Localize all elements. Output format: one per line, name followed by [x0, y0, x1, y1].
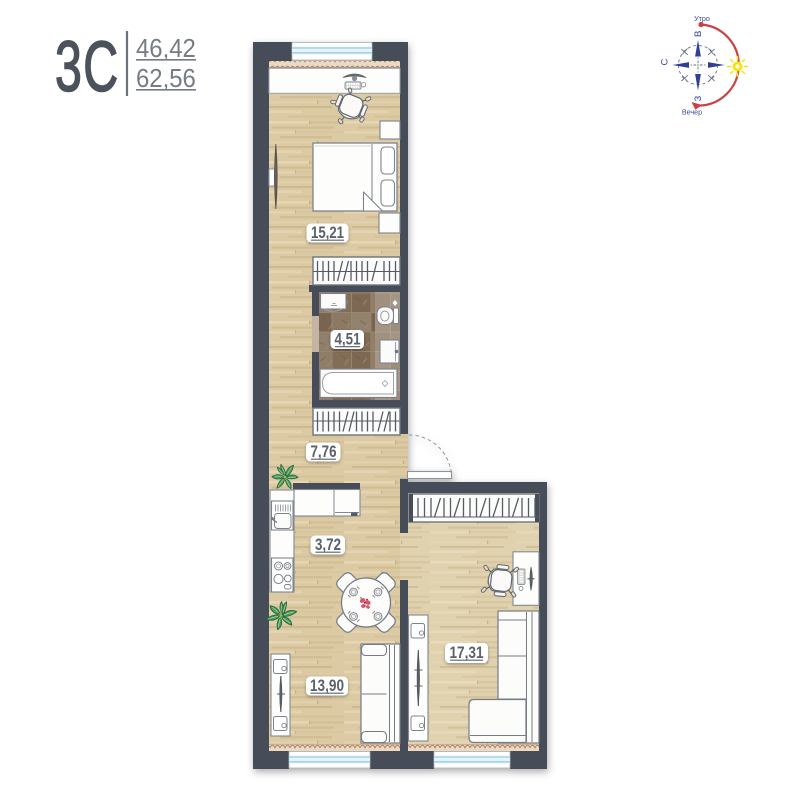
svg-text:С: С [660, 58, 671, 65]
svg-text:З: З [693, 96, 704, 102]
svg-text:4,51: 4,51 [335, 331, 361, 349]
svg-text:Вечер: Вечер [682, 108, 702, 117]
svg-text:В: В [693, 31, 704, 37]
svg-text:17,31: 17,31 [450, 644, 484, 662]
svg-text:3,72: 3,72 [315, 536, 341, 554]
svg-text:7,76: 7,76 [311, 443, 337, 461]
svg-text:15,21: 15,21 [311, 224, 344, 242]
svg-text:Утро: Утро [694, 14, 710, 23]
svg-text:3C: 3C [55, 27, 119, 107]
svg-text:62,56: 62,56 [136, 64, 196, 93]
svg-text:46,42: 46,42 [136, 34, 196, 63]
svg-text:13,90: 13,90 [310, 677, 344, 695]
